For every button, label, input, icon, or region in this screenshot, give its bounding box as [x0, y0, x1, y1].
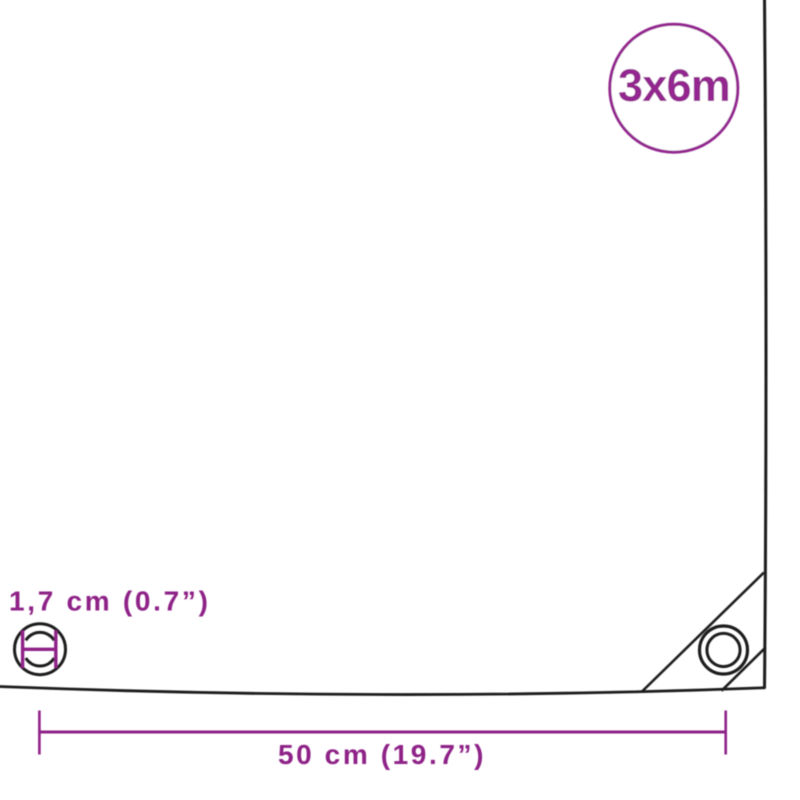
- svg-text:50 cm (19.7”): 50 cm (19.7”): [278, 739, 486, 770]
- svg-text:1,7 cm (0.7”): 1,7 cm (0.7”): [9, 585, 211, 616]
- svg-text:3x6m: 3x6m: [618, 60, 730, 111]
